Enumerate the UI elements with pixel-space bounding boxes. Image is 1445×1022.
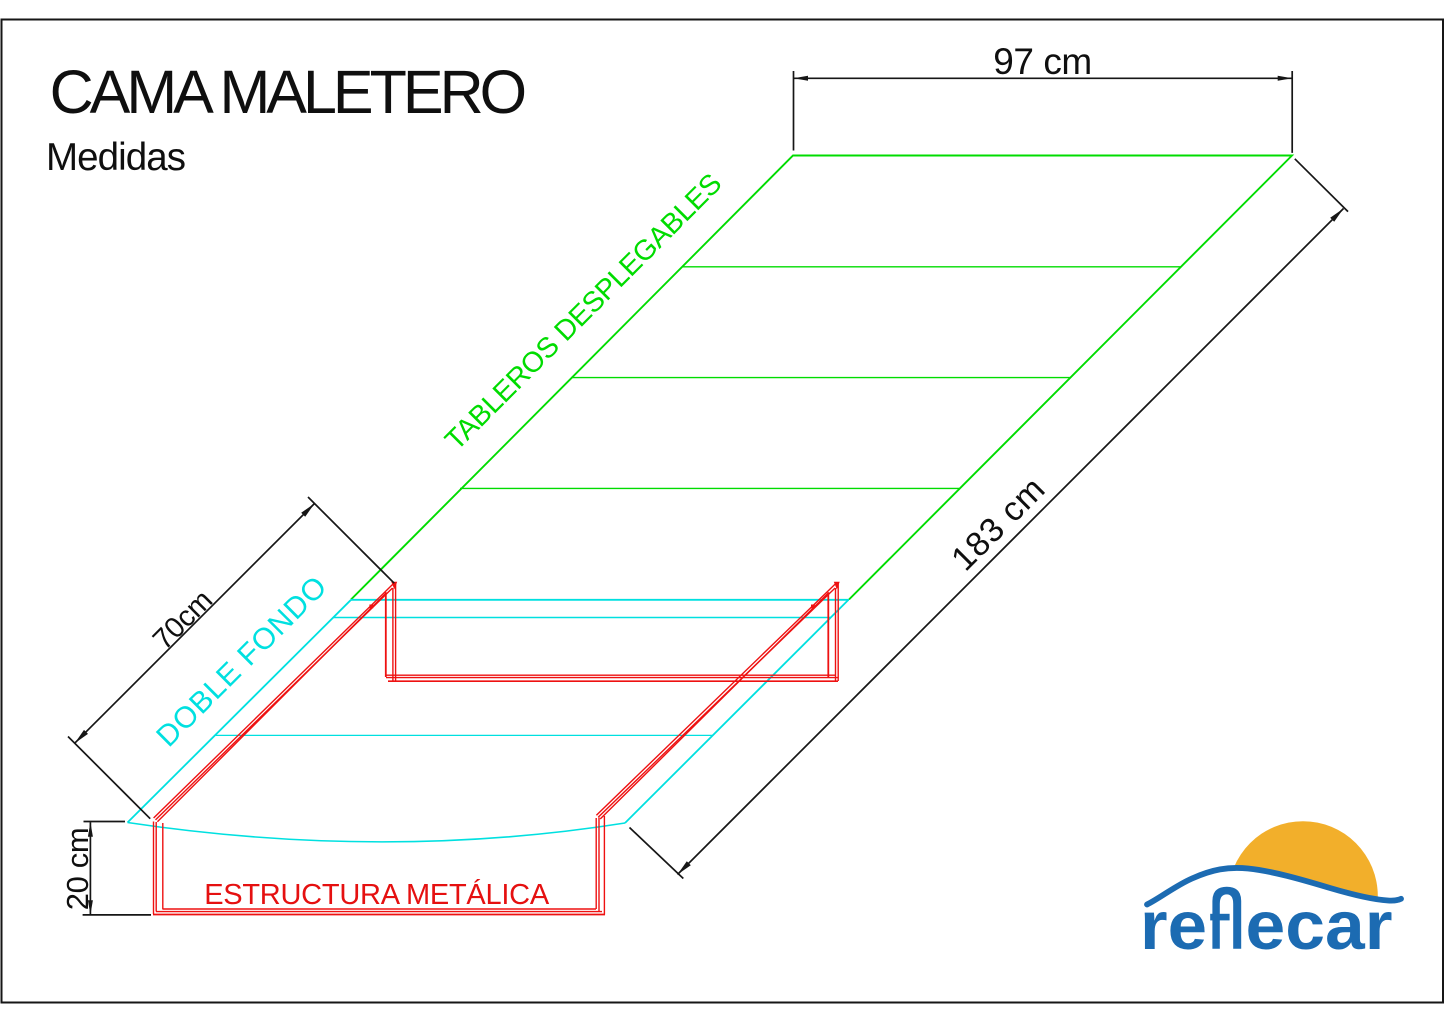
svg-text:20 cm: 20 cm — [60, 827, 95, 910]
svg-text:Medidas: Medidas — [46, 136, 186, 179]
svg-text:97 cm: 97 cm — [993, 41, 1092, 82]
svg-text:ESTRUCTURA METÁLICA: ESTRUCTURA METÁLICA — [204, 878, 550, 911]
svg-text:CAMA MALETERO: CAMA MALETERO — [50, 58, 527, 126]
svg-text:ecar: ecar — [1246, 887, 1393, 964]
svg-text:re: re — [1140, 887, 1207, 964]
